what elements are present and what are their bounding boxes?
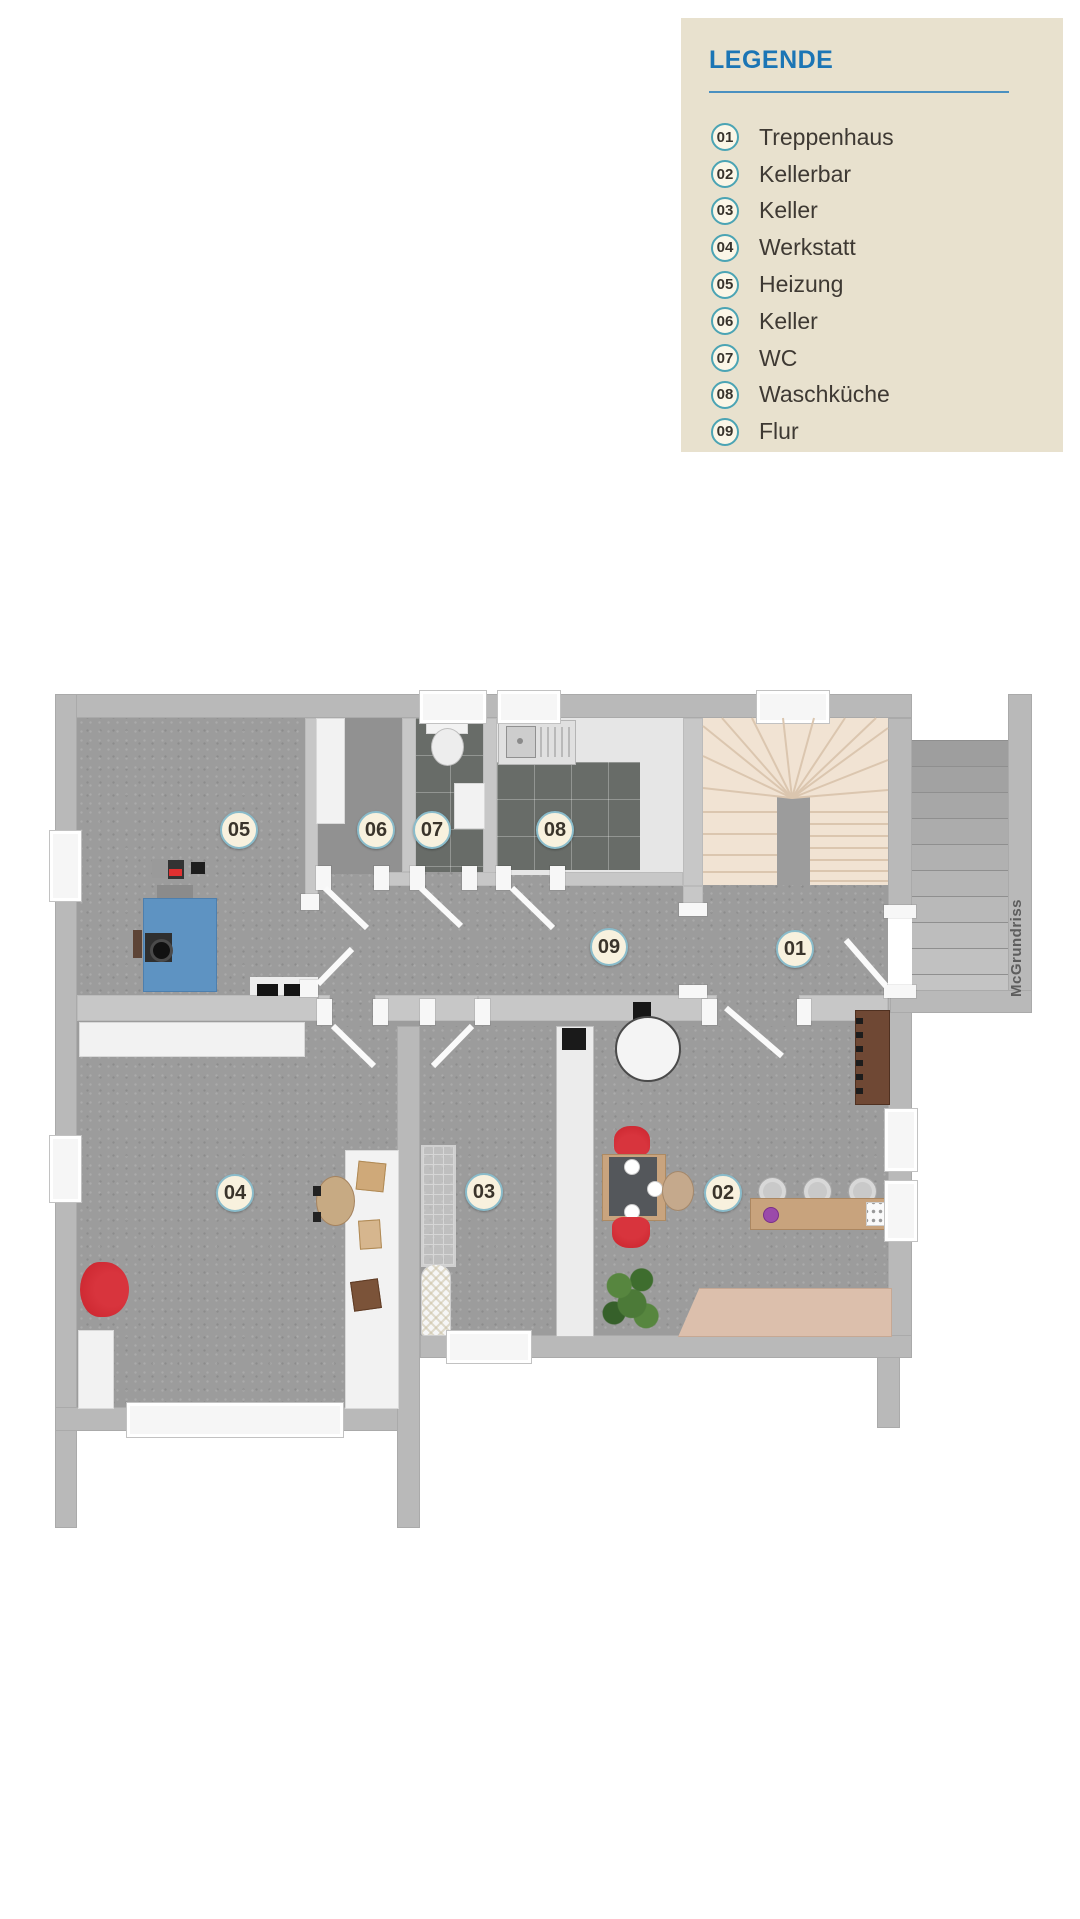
stair-step	[912, 948, 1008, 974]
window-left-workshop	[49, 1135, 82, 1203]
bottle	[763, 1207, 779, 1223]
stair-step	[912, 922, 1008, 948]
legend-item-label: Kellerbar	[759, 161, 851, 188]
wood-box	[358, 1219, 382, 1249]
legend-item-label: Treppenhaus	[759, 124, 894, 151]
legend-item-number: 09	[711, 418, 739, 446]
room-number: 08	[544, 819, 566, 842]
window-bottom-workshop	[126, 1402, 344, 1438]
legend-item-number: 05	[711, 271, 739, 299]
room-label-05: 05	[220, 811, 258, 849]
legend-item: 01 Treppenhaus	[711, 119, 1041, 156]
office-chair	[316, 1176, 355, 1226]
wc-shelf	[454, 783, 485, 829]
wall-04-03	[397, 1026, 420, 1528]
room-number: 01	[784, 938, 806, 961]
legend-item-label: Flur	[759, 418, 799, 445]
legend-item: 07 WC	[711, 340, 1041, 377]
room-number: 04	[224, 1182, 246, 1205]
stair-step	[912, 740, 1008, 766]
red-bench	[612, 1217, 650, 1248]
door-jamb	[374, 866, 389, 890]
room-number: 09	[598, 936, 620, 959]
sideboard-items	[856, 1014, 863, 1094]
room-label-04: 04	[216, 1174, 254, 1212]
room-number: 06	[365, 819, 387, 842]
legend-title: LEGENDE	[709, 46, 833, 75]
window-right-bar-1	[884, 1108, 918, 1172]
stair-step	[912, 844, 1008, 870]
floorplan-page: LEGENDE 01 Treppenhaus 02 Kellerbar 03 K…	[0, 0, 1080, 1919]
potted-plant	[600, 1264, 664, 1336]
stair-step	[912, 818, 1008, 844]
ironing-board	[421, 1264, 451, 1336]
door-jamb	[702, 999, 717, 1025]
legend-item: 03 Keller	[711, 193, 1041, 230]
boiler-side-tab	[133, 930, 142, 958]
door-jamb	[420, 999, 435, 1025]
boiler-port-ring	[150, 939, 173, 962]
door-jamb	[679, 903, 707, 916]
wall-outer-left	[55, 694, 77, 1528]
wall-07-08	[483, 718, 497, 875]
legend-item-number: 06	[711, 307, 739, 335]
stairwell-void	[777, 797, 810, 885]
boiler-stand	[157, 885, 193, 898]
wall-niche	[562, 1028, 586, 1050]
round-table	[615, 1016, 681, 1082]
chair-armrest	[313, 1212, 321, 1222]
wall-right-stub	[877, 1355, 900, 1428]
faucet-icon	[517, 738, 523, 744]
window-top-wc	[419, 690, 487, 724]
room-number: 02	[712, 1182, 734, 1205]
wall-corridor-top	[555, 872, 683, 886]
legend-item-label: Heizung	[759, 271, 843, 298]
door-jamb	[884, 985, 916, 998]
legend-panel: LEGENDE 01 Treppenhaus 02 Kellerbar 03 K…	[681, 18, 1063, 452]
boiler-burner-part	[191, 862, 205, 874]
room-label-09: 09	[590, 928, 628, 966]
wall-corridor-bottom	[478, 995, 717, 1021]
red-armchair	[80, 1262, 129, 1317]
legend-divider	[709, 91, 1009, 93]
room-number: 03	[473, 1181, 495, 1204]
chair-armrest	[313, 1186, 321, 1196]
door-jamb	[496, 866, 511, 890]
workshop-cupboard	[79, 1022, 305, 1057]
sink-drainboard	[540, 727, 570, 757]
plate	[647, 1181, 663, 1197]
stair-step	[912, 792, 1008, 818]
legend-list: 01 Treppenhaus 02 Kellerbar 03 Keller 04…	[711, 119, 1041, 450]
window-right-bar-2	[884, 1180, 918, 1242]
legend-item-label: WC	[759, 345, 797, 372]
vent-icon	[284, 984, 301, 996]
wall-03-02	[556, 1026, 594, 1337]
room-label-07: 07	[413, 811, 451, 849]
door-jamb	[475, 999, 490, 1025]
window-top-laundry	[497, 690, 561, 724]
door-jamb	[317, 999, 332, 1025]
door-jamb	[884, 905, 916, 918]
door-jamb	[797, 999, 811, 1025]
wall-08-stairroom	[683, 718, 703, 886]
wall-06-07	[402, 718, 416, 872]
window-bottom-keller	[446, 1330, 532, 1364]
wood-crate	[350, 1278, 382, 1312]
exterior-stairs	[912, 740, 1008, 990]
stair-step	[912, 896, 1008, 922]
legend-item-number: 08	[711, 381, 739, 409]
room-label-02: 02	[704, 1174, 742, 1212]
dining-chair	[662, 1171, 694, 1211]
legend-item-label: Werkstatt	[759, 234, 856, 261]
door-jamb	[316, 866, 331, 890]
legend-item-label: Waschküche	[759, 381, 890, 408]
watermark: McGrundriss	[1008, 896, 1032, 1000]
legend-item: 08 Waschküche	[711, 377, 1041, 414]
toilet-bowl	[431, 728, 464, 766]
legend-item: 02 Kellerbar	[711, 156, 1041, 193]
wall-outer-right-upper	[888, 718, 912, 917]
boiler-burner-part	[152, 859, 168, 878]
window-top-stairs	[756, 690, 830, 724]
legend-item: 06 Keller	[711, 303, 1041, 340]
door-jamb	[679, 985, 707, 998]
door-jamb	[373, 999, 388, 1025]
wall-05-bottom	[77, 995, 318, 1021]
legend-item-label: Keller	[759, 197, 818, 224]
white-cabinet	[78, 1330, 114, 1409]
room-number: 05	[228, 819, 250, 842]
boiler-red-indicator	[169, 869, 182, 876]
cupboard-room06	[316, 718, 345, 824]
legend-item: 04 Werkstatt	[711, 229, 1041, 266]
room-number: 07	[421, 819, 443, 842]
window-left-heating	[49, 830, 82, 902]
wood-box	[356, 1161, 387, 1193]
legend-item-number: 02	[711, 160, 739, 188]
legend-item-number: 04	[711, 234, 739, 262]
legend-item-number: 03	[711, 197, 739, 225]
red-bench	[614, 1126, 650, 1156]
stair-step	[912, 766, 1008, 792]
wire-shelving	[421, 1145, 456, 1267]
legend-item: 09 Flur	[711, 413, 1041, 450]
door-jamb	[550, 866, 565, 890]
plate	[624, 1159, 640, 1175]
door-jamb	[301, 894, 319, 910]
stair-step	[912, 870, 1008, 896]
room-label-06: 06	[357, 811, 395, 849]
vent-icon	[257, 984, 278, 996]
legend-item-number: 01	[711, 123, 739, 151]
room-label-01: 01	[776, 930, 814, 968]
legend-item-label: Keller	[759, 308, 818, 335]
room-label-03: 03	[465, 1173, 503, 1211]
legend-item-number: 07	[711, 344, 739, 372]
door-jamb	[462, 866, 477, 890]
room-label-08: 08	[536, 811, 574, 849]
door-jamb	[410, 866, 425, 890]
legend-item: 05 Heizung	[711, 266, 1041, 303]
low-counter	[678, 1288, 892, 1337]
door-jamb	[300, 980, 318, 997]
